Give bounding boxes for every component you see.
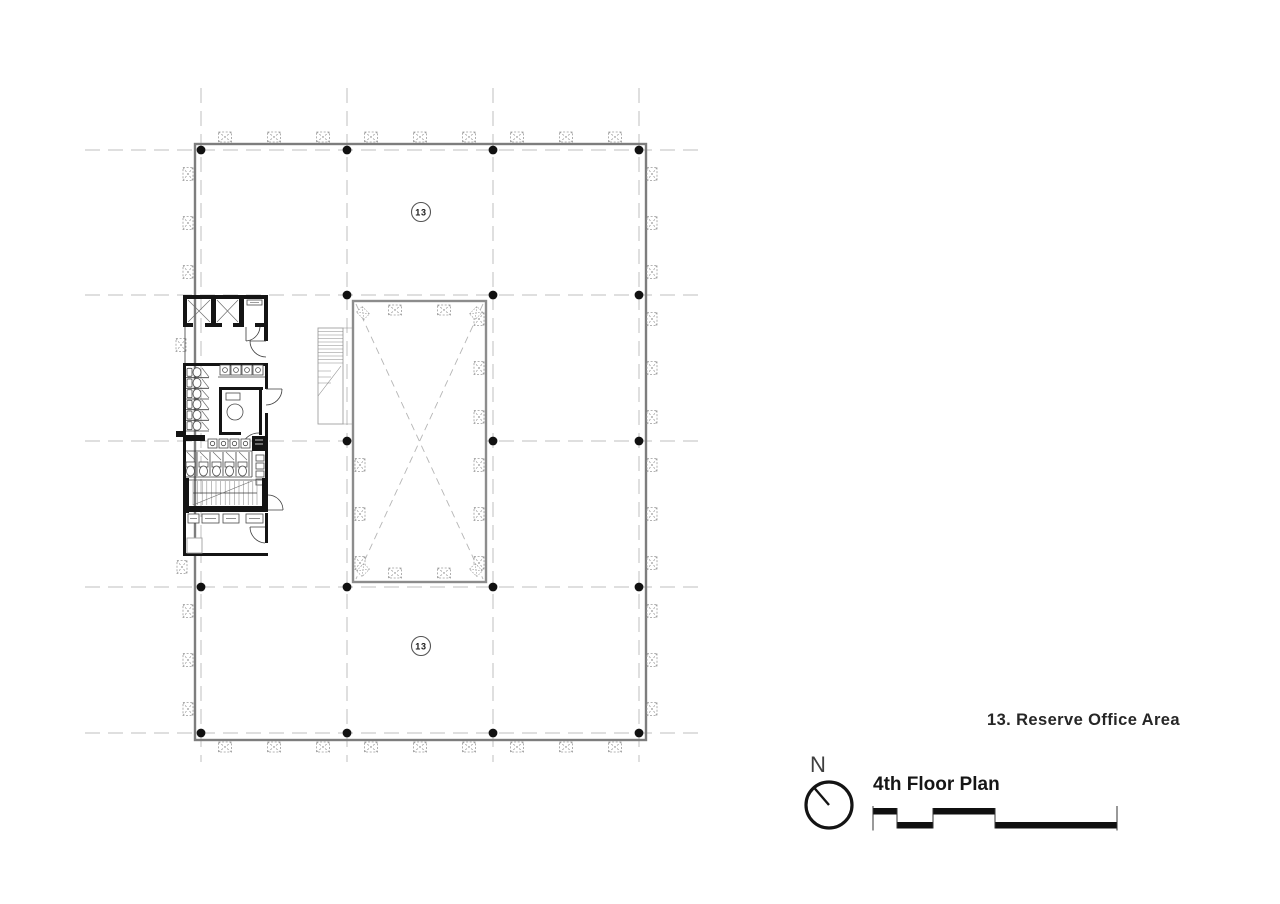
area-label-bottom: 13 [412, 637, 431, 656]
legend-entry: 13. Reserve Office Area [987, 711, 1180, 729]
core-stair [183, 478, 283, 513]
drawing-sheet: 13 13 13. Reserve Office Area N 4th Floo… [0, 0, 1280, 904]
north-label: N [810, 752, 826, 777]
area-label-bottom-text: 13 [415, 642, 427, 652]
elevator-lobby [185, 327, 266, 363]
north-arrow-icon: N [806, 752, 852, 828]
central-void [353, 301, 486, 582]
scale-bar-icon [873, 806, 1117, 831]
floor-plan-drawing: 13 13 13. Reserve Office Area N 4th Floo… [0, 0, 1280, 904]
plan-title: 4th Floor Plan [873, 774, 1000, 795]
area-label-top-text: 13 [415, 208, 427, 218]
area-label-top: 13 [412, 203, 431, 222]
service-boxes [188, 514, 263, 523]
service-core [176, 295, 283, 556]
